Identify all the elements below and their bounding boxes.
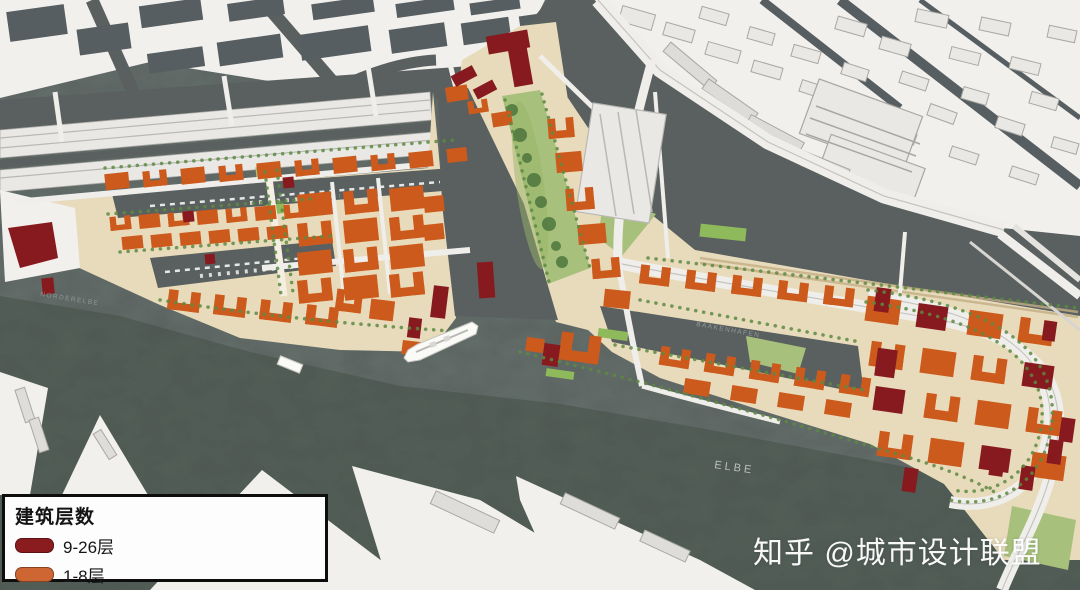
masterplan-screenshot: ELBE BAAKENHAFEN NORDERELBE 建筑层数 9-26层 1… [0, 0, 1080, 590]
legend-swatch-low-rise [15, 567, 54, 582]
legend-label-high-rise: 9-26层 [63, 533, 114, 558]
legend-item-low-rise: 1-8层 [15, 562, 315, 587]
watermark: 知乎 @城市设计联盟 [753, 528, 1042, 572]
legend-item-high-rise: 9-26层 [15, 533, 315, 558]
legend: 建筑层数 9-26层 1-8层 [2, 494, 328, 582]
legend-title: 建筑层数 [15, 502, 315, 529]
legend-label-low-rise: 1-8层 [63, 562, 105, 587]
legend-swatch-high-rise [15, 538, 54, 553]
